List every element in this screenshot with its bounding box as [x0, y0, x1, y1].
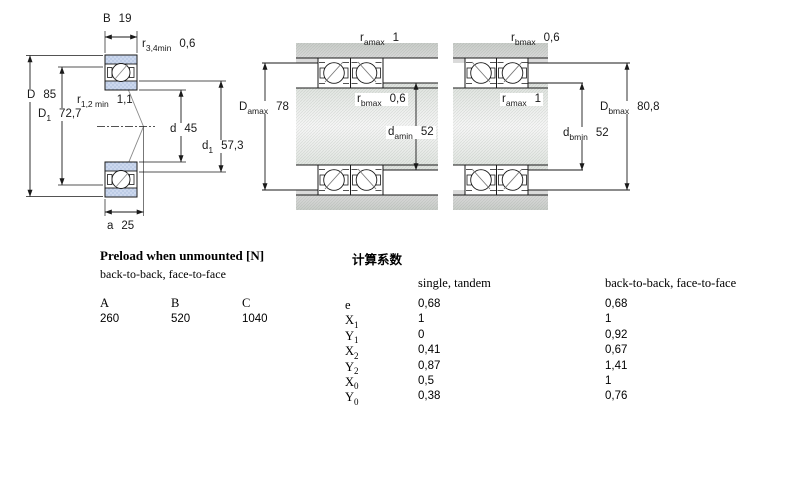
factors-header-row: single, tandem back-to-back, face-to-fac… — [345, 276, 775, 291]
factor-row: Y0 0,38 0,76 — [345, 390, 775, 405]
dim-label-r34: r3,4min0,6 — [142, 38, 195, 51]
bearing-spec-page: B19 r3,4min0,6 D85 D172,7 r1,2 min1,1 d4… — [0, 0, 800, 500]
factors-col2-header: back-to-back, face-to-face — [605, 276, 765, 291]
dim-label-d1: d157,3 — [200, 140, 246, 153]
dim-label-rbmax: rbmax0,6 — [355, 93, 408, 106]
bearing-pair-top — [465, 58, 528, 88]
preload-title: Preload when unmounted [N] — [100, 248, 350, 264]
preload-col-c: C — [242, 296, 313, 311]
dim-label-ramax2: ramax1 — [500, 93, 543, 106]
dim-label-a: a25 — [107, 220, 134, 233]
preload-col-b: B — [171, 296, 242, 311]
bearing-pair-bottom — [318, 165, 383, 195]
preload-val-b: 520 — [171, 313, 242, 325]
factors-title: 计算系数 — [345, 249, 775, 268]
dim-label-damin: damin52 — [386, 126, 436, 139]
preload-value-row: 260 520 1040 — [100, 313, 350, 325]
factors-rows: e 0,68 0,68 X1 1 1 Y1 0 0,92 X2 0,41 0,6… — [345, 298, 775, 406]
preload-subtitle: back-to-back, face-to-face — [100, 267, 350, 282]
bearing-pair-top — [318, 58, 383, 88]
dim-label-rbmax-top: rbmax0,6 — [511, 32, 560, 45]
factor-row: Y1 0 0,92 — [345, 329, 775, 344]
factor-row: X1 1 1 — [345, 313, 775, 328]
factor-row: X2 0,41 0,67 — [345, 344, 775, 359]
calculation-factors-table: 计算系数 single, tandem back-to-back, face-t… — [345, 249, 775, 406]
dim-label-Damax: Damax78 — [237, 101, 291, 114]
dim-label-D1: D172,7 — [36, 108, 83, 121]
preload-val-a: 260 — [100, 313, 171, 325]
preload-table: Preload when unmounted [N] back-to-back,… — [100, 248, 350, 325]
dim-label-D: D85 — [25, 89, 58, 102]
factors-col1-header: single, tandem — [418, 276, 605, 291]
preload-val-c: 1040 — [242, 313, 313, 325]
factor-row: e 0,68 0,68 — [345, 298, 775, 313]
preload-col-a: A — [100, 296, 171, 311]
dim-label-dbmin: dbmin52 — [561, 127, 611, 140]
dim-label-d: d45 — [168, 123, 199, 136]
dim-label-ramax: ramax1 — [360, 32, 399, 45]
dim-label-r12: r1,2 min1,1 — [77, 94, 133, 107]
dim-label-Dbmax: Dbmax80,8 — [598, 101, 662, 114]
dim-label-B: B19 — [103, 13, 131, 26]
bearing-pair-bottom — [465, 165, 528, 195]
preload-header-row: A B C — [100, 296, 350, 311]
factor-row: X0 0,5 1 — [345, 375, 775, 390]
factor-row: Y2 0,87 1,41 — [345, 360, 775, 375]
